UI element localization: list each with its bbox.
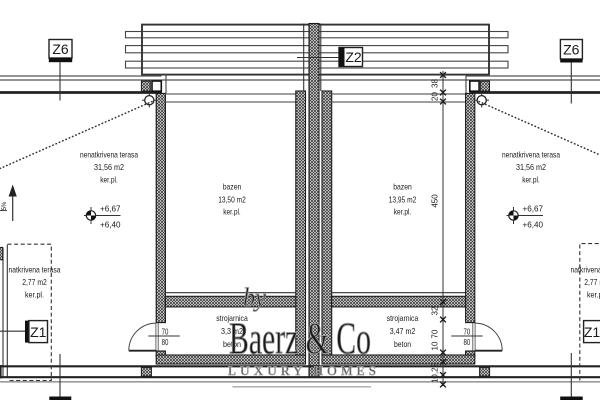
svg-text:2,77 m2: 2,77 m2	[22, 277, 47, 287]
svg-text:Baerz & Co: Baerz & Co	[229, 313, 371, 364]
svg-text:450: 450	[431, 194, 440, 208]
svg-text:Z2: Z2	[345, 49, 362, 65]
svg-text:bazen: bazen	[223, 182, 242, 192]
svg-text:32: 32	[431, 306, 440, 315]
svg-text:70: 70	[431, 329, 440, 338]
svg-text:+6,40: +6,40	[523, 220, 544, 230]
svg-text:10,25: 10,25	[431, 362, 440, 383]
svg-text:nenatkrivena terasa: nenatkrivena terasa	[80, 150, 138, 160]
svg-text:10: 10	[431, 341, 440, 350]
svg-text:bazen: bazen	[393, 182, 412, 192]
svg-text:31,56 m2: 31,56 m2	[516, 162, 546, 172]
svg-text:13,50 m2: 13,50 m2	[218, 195, 246, 205]
svg-text:31,56 m2: 31,56 m2	[94, 162, 124, 172]
svg-text:70: 70	[162, 328, 169, 337]
svg-text:5%: 5%	[2, 201, 8, 210]
svg-text:nenatkrivena terasa: nenatkrivena terasa	[502, 150, 560, 160]
svg-text:ker.pl.: ker.pl.	[223, 207, 241, 217]
svg-text:Z6: Z6	[52, 41, 69, 57]
svg-text:80: 80	[162, 338, 169, 347]
svg-text:natkrivena terasa: natkrivena terasa	[9, 265, 61, 275]
svg-text:2,77 m2: 2,77 m2	[584, 277, 600, 287]
svg-text:strojarnica: strojarnica	[387, 313, 419, 323]
svg-text:Z1: Z1	[30, 324, 47, 340]
svg-text:+6,67: +6,67	[100, 204, 121, 214]
svg-text:80: 80	[464, 338, 471, 347]
svg-text:+6,67: +6,67	[523, 204, 544, 214]
svg-text:ker.pl.: ker.pl.	[587, 290, 600, 300]
svg-text:+6,40: +6,40	[100, 220, 121, 230]
svg-text:20: 20	[431, 92, 440, 101]
svg-text:ker.pl.: ker.pl.	[522, 175, 540, 185]
svg-text:Z1: Z1	[584, 324, 600, 340]
svg-text:3,47 m2: 3,47 m2	[390, 326, 416, 336]
svg-text:Z6: Z6	[563, 42, 580, 58]
svg-text:13,95 m2: 13,95 m2	[389, 195, 417, 205]
svg-text:ker.pl.: ker.pl.	[394, 207, 412, 217]
svg-text:beton: beton	[394, 339, 411, 349]
svg-text:ker.pl.: ker.pl.	[100, 175, 118, 185]
svg-text:ker.pl.: ker.pl.	[25, 290, 44, 300]
svg-text:by: by	[243, 283, 266, 312]
svg-text:70: 70	[464, 328, 471, 337]
svg-text:38: 38	[431, 79, 440, 88]
svg-text:natkrivena terasa: natkrivena terasa	[571, 265, 600, 275]
